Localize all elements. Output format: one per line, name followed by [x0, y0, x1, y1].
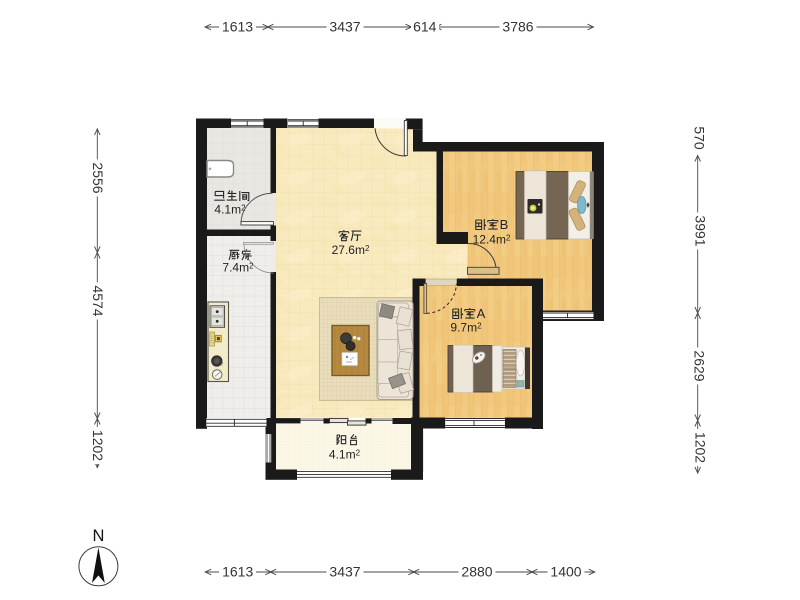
svg-text:3991: 3991 [693, 215, 709, 246]
svg-text:1202: 1202 [90, 430, 106, 461]
svg-text:4574: 4574 [90, 285, 106, 316]
svg-text:12.4m2: 12.4m2 [473, 233, 511, 247]
svg-text:1613: 1613 [222, 19, 253, 35]
svg-text:N: N [92, 527, 104, 545]
svg-text:2556: 2556 [90, 162, 106, 193]
svg-text:3786: 3786 [502, 19, 533, 35]
svg-text:2629: 2629 [692, 350, 708, 381]
svg-text:B: B [500, 217, 509, 232]
svg-text:27.6m2: 27.6m2 [332, 243, 370, 257]
svg-text:2880: 2880 [461, 564, 492, 580]
svg-text:614: 614 [413, 19, 437, 35]
svg-text:1613: 1613 [222, 564, 253, 580]
svg-text:3437: 3437 [329, 564, 360, 580]
svg-text:1400: 1400 [550, 564, 581, 580]
svg-text:A: A [477, 306, 486, 321]
svg-text:570: 570 [692, 126, 708, 150]
svg-text:3437: 3437 [329, 19, 360, 35]
svg-text:1202: 1202 [693, 432, 709, 463]
